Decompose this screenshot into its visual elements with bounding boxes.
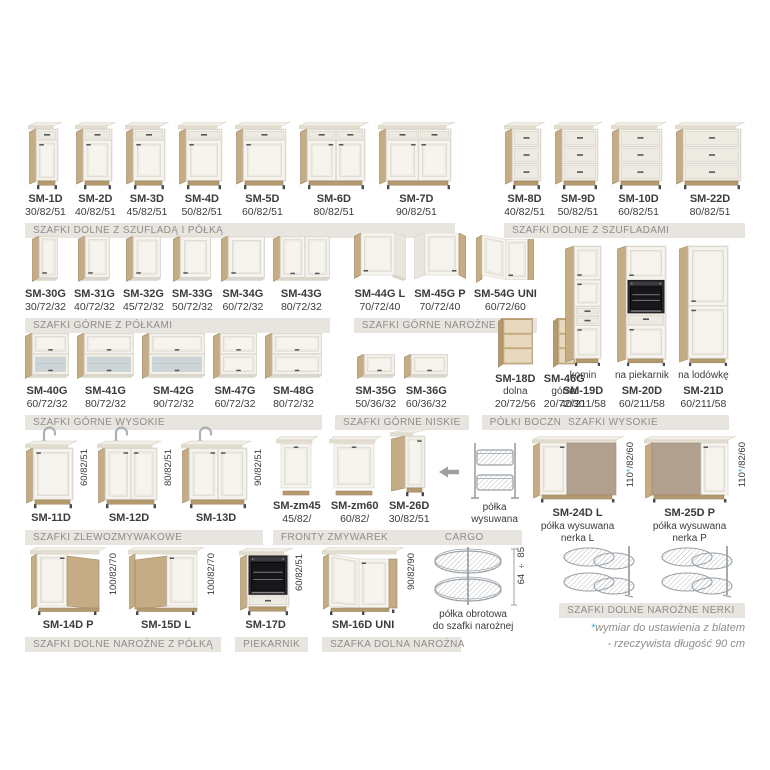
item-dims: 80/72/32 — [85, 398, 126, 411]
item-dims: 90/82/51 — [396, 206, 437, 219]
item-dims: 40/82/51 — [504, 206, 545, 219]
cabinet-illustration — [265, 333, 322, 382]
section-items: SM-zm4545/82/SM-zm6060/82/SM-26D30/82/51… — [273, 429, 522, 526]
cabinet-illustration — [30, 547, 106, 616]
cabinet-illustration — [173, 236, 211, 285]
arrow-left-icon — [438, 464, 460, 480]
catalog-row-3: SM-40G60/72/32SM-41G80/72/32SM-42G90/72/… — [25, 318, 598, 430]
section-items: SM-1D30/82/51SM-2D40/82/51SM-3D45/82/51S… — [25, 122, 455, 219]
item-SM-22D: SM-22D80/82/51 — [675, 122, 745, 219]
cabinet-illustration — [476, 235, 534, 285]
cabinet-illustration — [357, 354, 395, 382]
item-sublabel: na piekarnik — [615, 370, 669, 382]
item-code: SM-47G — [215, 385, 256, 399]
item-dims: 50/82/51 — [181, 206, 222, 219]
item-vertical-dims: 100/82/70 — [207, 553, 217, 595]
section-items: SM-24D Lpółka wysuwana nerka L110*/82/60… — [532, 436, 748, 545]
cabinet-illustration — [675, 122, 745, 190]
item-vertical-dims: 64 ÷ 85 — [517, 547, 527, 584]
section-label-bar: PIEKARNIK — [235, 637, 308, 652]
item-SM-36G: SM-36G60/36/32 — [404, 354, 448, 411]
item-dims: 90/72/32 — [153, 398, 194, 411]
section-items: SM-16D UNI90/82/90półka obrotowa do szaf… — [322, 545, 532, 633]
item-SM-9D: SM-9D50/82/51 — [554, 122, 602, 219]
section-group-r5d: SZAFKI DOLNE NAROŻNE NERKI*wymiar do ust… — [559, 543, 745, 652]
section-items — [559, 543, 745, 599]
item-code: SM-6D — [317, 193, 351, 207]
item-SM-13D: SM-13D90/82/51 — [181, 421, 251, 526]
item-code: SM-44G L — [355, 288, 406, 302]
item-dims: 40/211/58 — [560, 398, 606, 411]
item-code: SM-zm60 — [331, 500, 379, 514]
section-items: SM-8D40/82/51SM-9D50/82/51SM-10D60/82/51… — [504, 122, 745, 219]
item-dims: 30/72/32 — [25, 301, 66, 314]
cabinet-illustration — [273, 236, 330, 285]
item-sublabel: na lodówkę — [678, 370, 729, 382]
cabinet-illustration — [128, 547, 204, 616]
cabinet-illustration — [181, 421, 251, 509]
catalog-row-4: kominSM-19D40/211/58na piekarnikSM-20D60… — [560, 242, 729, 430]
section-items: SM-35G50/36/32SM-36G60/36/32 — [335, 354, 469, 411]
item-code: SM-40G — [27, 385, 68, 399]
item-SM-31G: SM-31G40/72/32 — [74, 236, 115, 314]
cabinet-illustration — [276, 436, 318, 497]
cabinet-illustration — [126, 236, 161, 285]
section-group-r5b: SM-17D60/82/51PIEKARNIK — [235, 548, 308, 652]
cabinet-illustration — [25, 333, 69, 382]
item-code: SM-41G — [85, 385, 126, 399]
cabinet-illustration — [97, 421, 161, 509]
item-figCargo: półka wysuwana — [468, 440, 522, 526]
item-vertical-dims: 60/82/51 — [80, 449, 90, 486]
item-code: SM-33G — [172, 288, 213, 302]
item-dims: 80/82/51 — [313, 206, 354, 219]
cabinet-illustration — [564, 242, 602, 368]
section-items: SM-17D60/82/51 — [235, 548, 308, 633]
item-dims: 30/82/51 — [389, 513, 430, 526]
item-sublabel: dolna — [503, 386, 527, 398]
item-code: SM-25D P — [664, 507, 715, 521]
item-SM-zm60: SM-zm6060/82/ — [329, 436, 381, 526]
section-label: CARGO — [445, 532, 514, 543]
item-vertical-dims: 110*/82/60 — [738, 442, 748, 487]
cabinet-illustration — [354, 233, 406, 285]
cabinet-illustration — [213, 333, 257, 382]
catalog-canvas: SM-1D30/82/51SM-2D40/82/51SM-3D45/82/51S… — [0, 0, 770, 770]
carousel-shelf-figure — [426, 545, 520, 609]
item-sublabel: komin — [570, 370, 597, 382]
item-code: SM-14D P — [43, 619, 94, 633]
item-code: SM-30G — [25, 288, 66, 302]
section-group-r4a: SM-11D60/82/51SM-12D80/82/51SM-13D90/82/… — [25, 421, 263, 545]
cabinet-illustration — [678, 242, 729, 368]
cabinet-illustration — [498, 318, 533, 370]
cabinet-illustration — [611, 122, 666, 190]
catalog-row-1: SM-1D30/82/51SM-2D40/82/51SM-3D45/82/51S… — [25, 122, 745, 238]
item-code: SM-17D — [245, 619, 285, 633]
section-items: SM-40G60/72/32SM-41G80/72/32SM-42G90/72/… — [25, 333, 322, 411]
item-dims: 40/72/32 — [74, 301, 115, 314]
item-code: SM-21D — [683, 385, 723, 399]
section-label: PIEKARNIK — [243, 639, 300, 650]
item-code: SM-54G UNI — [474, 288, 537, 302]
section-group-r1b: SM-8D40/82/51SM-9D50/82/51SM-10D60/82/51… — [504, 122, 745, 238]
item-SM-14D P: SM-14D P100/82/70 — [30, 547, 106, 633]
catalog-row-5: SM-11D60/82/51SM-12D80/82/51SM-13D90/82/… — [25, 421, 745, 545]
item-SM-54G UNI: SM-54G UNI60/72/60 — [474, 235, 537, 314]
cabinet-illustration — [125, 122, 169, 190]
item-SM-1D: SM-1D30/82/51 — [25, 122, 66, 219]
item-code: SM-34G — [222, 288, 263, 302]
item-dims: 20/72/56 — [495, 398, 536, 411]
item-dims: 50/36/32 — [355, 398, 396, 411]
item-code: SM-24D L — [553, 507, 603, 521]
item-dims: 70/72/40 — [419, 301, 460, 314]
item-SM-42G: SM-42G90/72/32 — [142, 333, 205, 411]
item-code: SM-7D — [399, 193, 433, 207]
item-code: SM-35G — [355, 385, 396, 399]
item-SM-26D: SM-26D30/82/51 — [389, 429, 430, 526]
section-items: SM-14D P100/82/70SM-15D L100/82/70 — [25, 547, 221, 633]
cargo-pullout-basket-figure — [468, 440, 522, 502]
cabinet-illustration — [32, 236, 58, 285]
item-dims: 80/72/32 — [273, 398, 314, 411]
cabinet-illustration — [221, 236, 265, 285]
section-label: SZAFKI DOLNE NAROŻNE NERKI — [567, 605, 735, 616]
section-items: kominSM-19D40/211/58na piekarnikSM-20D60… — [560, 242, 729, 411]
section-label: SZAFKA DOLNA NAROŻNA — [330, 639, 465, 650]
item-SM-11D: SM-11D60/82/51 — [25, 421, 77, 526]
item-SM-32G: SM-32G45/72/32 — [123, 236, 164, 314]
section-label-bar: SZAFKI DOLNE NAROŻNE NERKI — [559, 603, 745, 618]
cabinet-illustration — [329, 436, 381, 497]
item-SM-44G L: SM-44G L70/72/40 — [354, 233, 406, 314]
item-SM-48G: SM-48G80/72/32 — [265, 333, 322, 411]
item-SM-34G: SM-34G60/72/32 — [221, 236, 265, 314]
footnote: *wymiar do ustawienia z blatem- rzeczywi… — [559, 621, 745, 652]
item-SM-4D: SM-4D50/82/51 — [178, 122, 226, 219]
cabinet-illustration — [178, 122, 226, 190]
item-dims: 60/211/58 — [619, 398, 665, 411]
item-dims: 60/72/32 — [222, 301, 263, 314]
item-dims: 60/82/51 — [242, 206, 283, 219]
item-dims: 45/72/32 — [123, 301, 164, 314]
cabinet-illustration — [378, 122, 455, 190]
section-label-bar: SZAFKI DOLNE Z SZUFLADAMI — [504, 223, 745, 238]
item-dims: 60/82/ — [340, 513, 369, 526]
item-code: SM-19D — [563, 385, 603, 399]
item-vertical-dims: 100/82/70 — [109, 553, 119, 595]
item-SM-5D: SM-5D60/82/51 — [235, 122, 290, 219]
item-SM-47G: SM-47G60/72/32 — [213, 333, 257, 411]
item-code: SM-36G — [406, 385, 447, 399]
item-SM-30G: SM-30G30/72/32 — [25, 236, 66, 314]
section-group-r1a: SM-1D30/82/51SM-2D40/82/51SM-3D45/82/51S… — [25, 122, 455, 238]
item-dims: 45/82/51 — [126, 206, 167, 219]
cabinet-illustration — [25, 421, 77, 509]
item-dims: 45/82/ — [282, 513, 311, 526]
item-dims: 50/72/32 — [172, 301, 213, 314]
item-dims: 60/36/32 — [406, 398, 447, 411]
catalog-page: { "page": {"description": "Kitchen cabin… — [0, 0, 770, 770]
item-dims: 80/82/51 — [690, 206, 731, 219]
item-code: SM-20D — [622, 385, 662, 399]
item-dims: 80/72/32 — [281, 301, 322, 314]
item-code: SM-42G — [153, 385, 194, 399]
item-figNerka — [657, 543, 745, 599]
cabinet-illustration — [390, 429, 429, 497]
section-label: FRONTY ZMYWAREK — [281, 532, 388, 543]
item-code: SM-11D — [31, 512, 71, 526]
section-items: SM-11D60/82/51SM-12D80/82/51SM-13D90/82/… — [25, 421, 263, 526]
item-dims: 60/72/60 — [485, 301, 526, 314]
cabinet-illustration — [28, 122, 62, 190]
cabinet-illustration — [142, 333, 205, 382]
kidney-shelf-figure — [657, 543, 745, 599]
item-SM-45G P: SM-45G P70/72/40 — [414, 233, 466, 314]
item-dims: 70/72/40 — [359, 301, 400, 314]
cabinet-illustration — [404, 354, 448, 382]
item-SM-18D: SM-18Ddolna20/72/56 — [495, 318, 536, 411]
item-sublabel: półka wysuwana nerka P — [653, 521, 726, 545]
section-group-r5c: SM-16D UNI90/82/90półka obrotowa do szaf… — [322, 545, 532, 652]
item-SM-25D P: SM-25D Ppółka wysuwana nerka P110*/82/60 — [644, 436, 736, 545]
item-vertical-dims: 80/82/51 — [164, 449, 174, 486]
section-group-r4d: SM-24D Lpółka wysuwana nerka L110*/82/60… — [532, 436, 748, 545]
item-code: SM-8D — [507, 193, 541, 207]
section-label: SZAFKI ZLEWOZMYWAKOWE — [33, 532, 182, 543]
item-code: SM-13D — [196, 512, 236, 526]
item-sublabel: półka wysuwana — [471, 502, 518, 526]
item-sublabel: półka wysuwana nerka L — [541, 521, 614, 545]
item-SM-41G: SM-41G80/72/32 — [77, 333, 134, 411]
item-vertical-dims: 90/82/51 — [254, 449, 264, 486]
cabinet-illustration — [532, 436, 624, 504]
section-label-bar: SZAFKA DOLNA NAROŻNA — [322, 637, 461, 652]
item-SM-17D: SM-17D60/82/51 — [239, 548, 293, 633]
cabinet-illustration — [616, 242, 667, 368]
item-code: SM-2D — [78, 193, 112, 207]
item-dims: 40/82/51 — [75, 206, 116, 219]
item-SM-6D: SM-6D80/82/51 — [299, 122, 369, 219]
cabinet-illustration — [77, 333, 134, 382]
section-label: SZAFKI DOLNE NAROŻNE Z PÓŁKĄ — [33, 639, 213, 650]
item-dims: 60/82/51 — [618, 206, 659, 219]
footnote-star: * — [591, 622, 595, 634]
item-dims: 60/211/58 — [680, 398, 726, 411]
item-code: SM-15D L — [141, 619, 191, 633]
item-vertical-dims: 90/82/90 — [407, 553, 417, 590]
cabinet-illustration — [235, 122, 290, 190]
cabinet-illustration — [299, 122, 369, 190]
item-code: SM-3D — [130, 193, 164, 207]
item-code: SM-43G — [281, 288, 322, 302]
section-group-r3b: SM-35G50/36/32SM-36G60/36/32SZAFKI GÓRNE… — [335, 354, 469, 430]
section-group-r5a: SM-14D P100/82/70SM-15D L100/82/70SZAFKI… — [25, 547, 221, 652]
item-code: SM-26D — [389, 500, 429, 514]
section-label-bar: SZAFKI DOLNE NAROŻNE Z PÓŁKĄ — [25, 637, 221, 652]
cabinet-illustration — [322, 547, 404, 616]
item-SM-43G: SM-43G80/72/32 — [273, 236, 330, 314]
section-group-r4bc: SM-zm4545/82/SM-zm6060/82/SM-26D30/82/51… — [273, 429, 522, 545]
item-figNerka — [559, 543, 647, 599]
item-code: SM-12D — [109, 512, 149, 526]
item-dims: 30/82/51 — [25, 206, 66, 219]
item-code: SM-9D — [561, 193, 595, 207]
cabinet-illustration — [239, 548, 293, 616]
item-arrow — [438, 464, 460, 480]
section-items: SM-44G L70/72/40SM-45G P70/72/40SM-54G U… — [354, 233, 537, 314]
item-SM-20D: na piekarnikSM-20D60/211/58 — [615, 242, 669, 411]
item-code: SM-10D — [618, 193, 658, 207]
cabinet-illustration — [554, 122, 602, 190]
item-SM-40G: SM-40G60/72/32 — [25, 333, 69, 411]
kidney-shelf-figure — [559, 543, 647, 599]
item-SM-19D: kominSM-19D40/211/58 — [560, 242, 606, 411]
item-code: SM-4D — [185, 193, 219, 207]
section-group-tall: kominSM-19D40/211/58na piekarnikSM-20D60… — [560, 242, 729, 430]
item-SM-2D: SM-2D40/82/51 — [75, 122, 116, 219]
item-SM-zm45: SM-zm4545/82/ — [273, 436, 321, 526]
item-dims: 50/82/51 — [558, 206, 599, 219]
cabinet-illustration — [75, 122, 116, 190]
item-code: SM-32G — [123, 288, 164, 302]
item-figCarousel: półka obrotowa do szafki narożnej64 ÷ 85 — [426, 545, 520, 633]
item-dims: 60/72/32 — [215, 398, 256, 411]
item-vertical-dims: 110*/82/60 — [626, 442, 636, 487]
cabinet-illustration — [78, 236, 110, 285]
section-group-r3a: SM-40G60/72/32SM-41G80/72/32SM-42G90/72/… — [25, 333, 322, 430]
item-dims: 60/72/32 — [27, 398, 68, 411]
item-code: SM-18D — [495, 373, 535, 387]
item-code: SM-45G P — [414, 288, 465, 302]
item-code: SM-zm45 — [273, 500, 321, 514]
item-SM-35G: SM-35G50/36/32 — [355, 354, 396, 411]
catalog-row-6: SM-14D P100/82/70SM-15D L100/82/70SZAFKI… — [25, 543, 745, 652]
item-SM-7D: SM-7D90/82/51 — [378, 122, 455, 219]
cabinet-illustration — [504, 122, 545, 190]
item-SM-24D L: SM-24D Lpółka wysuwana nerka L110*/82/60 — [532, 436, 624, 545]
item-sublabel: półka obrotowa do szafki narożnej — [433, 609, 514, 633]
item-SM-8D: SM-8D40/82/51 — [504, 122, 545, 219]
cabinet-illustration — [644, 436, 736, 504]
item-SM-21D: na lodówkęSM-21D60/211/58 — [678, 242, 729, 411]
item-code: SM-48G — [273, 385, 314, 399]
item-SM-3D: SM-3D45/82/51 — [125, 122, 169, 219]
cabinet-illustration — [414, 233, 466, 285]
item-SM-12D: SM-12D80/82/51 — [97, 421, 161, 526]
item-SM-15D L: SM-15D L100/82/70 — [128, 547, 204, 633]
item-code: SM-31G — [74, 288, 115, 302]
item-vertical-dims: 60/82/51 — [295, 554, 305, 591]
item-SM-33G: SM-33G50/72/32 — [172, 236, 213, 314]
item-code: SM-22D — [690, 193, 730, 207]
item-code: SM-5D — [245, 193, 279, 207]
item-SM-10D: SM-10D60/82/51 — [611, 122, 666, 219]
item-code: SM-16D UNI — [332, 619, 394, 633]
item-SM-16D UNI: SM-16D UNI90/82/90 — [322, 547, 404, 633]
section-items: SM-30G30/72/32SM-31G40/72/32SM-32G45/72/… — [25, 236, 330, 314]
item-code: SM-1D — [28, 193, 62, 207]
